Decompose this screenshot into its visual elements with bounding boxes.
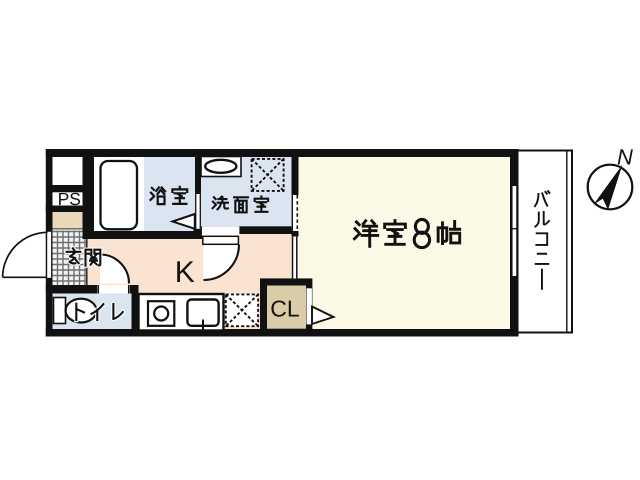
svg-text:CL: CL — [270, 296, 300, 322]
svg-text:K: K — [175, 256, 195, 289]
svg-text:N: N — [617, 145, 633, 170]
svg-text:PS: PS — [58, 189, 81, 209]
